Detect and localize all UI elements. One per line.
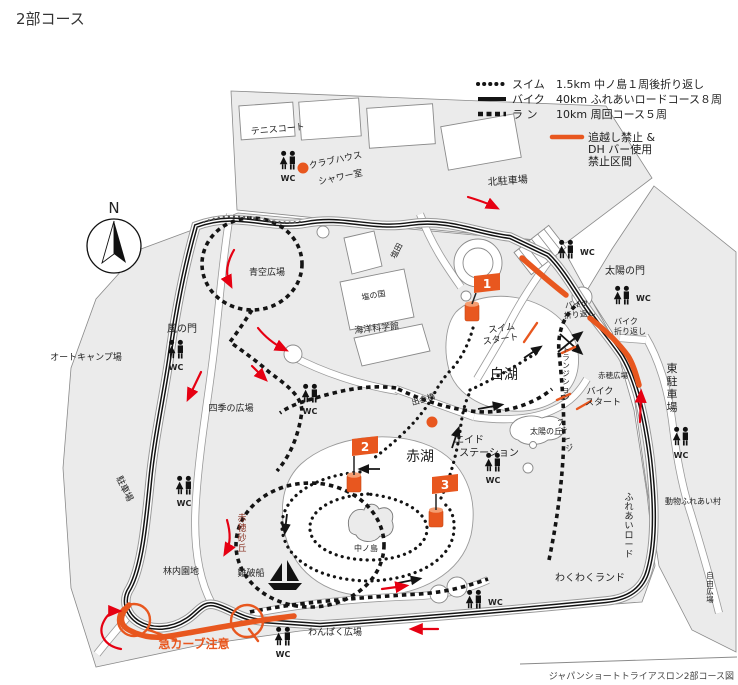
bike-turn-label-2b: 折り返し — [614, 326, 646, 336]
animal-village-label: 動物ふれあい村 — [665, 496, 721, 506]
wc-label: WC — [276, 650, 291, 659]
forest-area-label: 林内園地 — [163, 565, 199, 577]
course-map-svg: N WC WC WC WC WC WC WC WC WC WC 1 2 — [0, 0, 738, 685]
bike-start-label-1: バイク — [587, 386, 614, 397]
plaza-circle — [523, 463, 533, 473]
wc-label: WC — [281, 174, 296, 183]
wind-gate-label: 風の門 — [167, 323, 197, 335]
compass-north-label: N — [108, 199, 119, 217]
wc-label: WC — [674, 451, 689, 460]
amphitheater-inner — [463, 248, 493, 278]
fountain-circle — [430, 585, 448, 603]
compass: N — [87, 199, 141, 273]
sun-gate-label: 太陽の門 — [605, 264, 645, 277]
aid-station-label-2: ステーション — [459, 448, 519, 459]
legend-swim-desc: 1.5km 中ノ島１周後折り返し — [556, 77, 704, 91]
bike-start-label-2: スタート — [585, 397, 621, 408]
free-plaza-label: 自由広場 — [706, 570, 714, 604]
auto-camp-label: オートキャンプ場 — [50, 351, 122, 363]
white-lake-label: 白湖 — [490, 367, 518, 383]
ako-dune-label: 赤穂砂丘 — [237, 513, 246, 554]
road — [620, 338, 646, 340]
clubhouse-building — [299, 98, 362, 140]
buoy — [347, 472, 361, 492]
four-seasons-label: 四季の広場 — [208, 402, 253, 414]
legend-swim-label: スイム — [512, 78, 545, 91]
red-lake-label: 赤湖 — [406, 449, 434, 465]
wc-label: WC — [486, 476, 501, 485]
wanpaku-plaza-label: わんぱく広場 — [308, 626, 362, 638]
wc-label: WC — [169, 363, 184, 372]
buoy — [465, 301, 479, 321]
triathlon-course-map-page: N WC WC WC WC WC WC WC WC WC WC 1 2 — [0, 0, 738, 685]
flag-number: 1 — [483, 277, 491, 291]
wc-label: WC — [488, 598, 503, 607]
wc-label: WC — [303, 407, 318, 416]
legend-restriction-3: 禁止区間 — [588, 155, 632, 168]
legend-bike-label: バイク — [512, 93, 545, 106]
transition-label: トランジション — [562, 345, 570, 402]
flag-number: 3 — [441, 478, 449, 492]
aid-station-label-1: エイド — [454, 435, 484, 446]
legend-restriction-1: 追越し禁止 & — [588, 130, 655, 144]
bike-turn-label-2a: バイク — [614, 317, 638, 326]
legend-bike-desc: 40km ふれあいロードコース８周 — [556, 93, 722, 106]
east-parking-label: 東駐車場 — [667, 362, 678, 414]
map-caption: ジャパンショートトライアスロン2部コース図 — [549, 670, 734, 682]
wakuwaku-land-label: わくわくランド — [555, 572, 625, 584]
legend-run-label: ラ ン — [512, 108, 538, 121]
page-title: 2部コース — [16, 10, 85, 28]
shipwreck-label: 難破船 — [237, 567, 264, 579]
buoy — [429, 507, 443, 527]
wc-label: WC — [177, 499, 192, 508]
plaza-circle — [317, 226, 329, 238]
aid-station-dot — [427, 417, 438, 428]
south-boundary-line — [520, 657, 737, 664]
sharp-curve-warning-label: 急カーブ注意 — [158, 636, 229, 651]
fureai-road-label: ふれあいロード — [624, 492, 633, 560]
sun-hill-label: 太陽の丘 — [530, 426, 562, 436]
shower-dot — [298, 163, 309, 174]
wc-label: WC — [580, 248, 595, 257]
building — [367, 104, 436, 149]
blue-sky-plaza-label: 青空広場 — [249, 266, 285, 278]
flag-number: 2 — [361, 440, 369, 454]
plaza-circle — [461, 291, 471, 301]
direction-arrow — [640, 394, 641, 422]
roundabout — [284, 345, 302, 363]
wc-label: WC — [636, 294, 651, 303]
nakanoshima-label: 中ノ島 — [354, 543, 378, 553]
legend-run-desc: 10km 周回コース５周 — [556, 108, 667, 121]
plaza-circle — [530, 442, 537, 449]
ako-plaza-label: 赤穂広場 — [598, 370, 628, 380]
